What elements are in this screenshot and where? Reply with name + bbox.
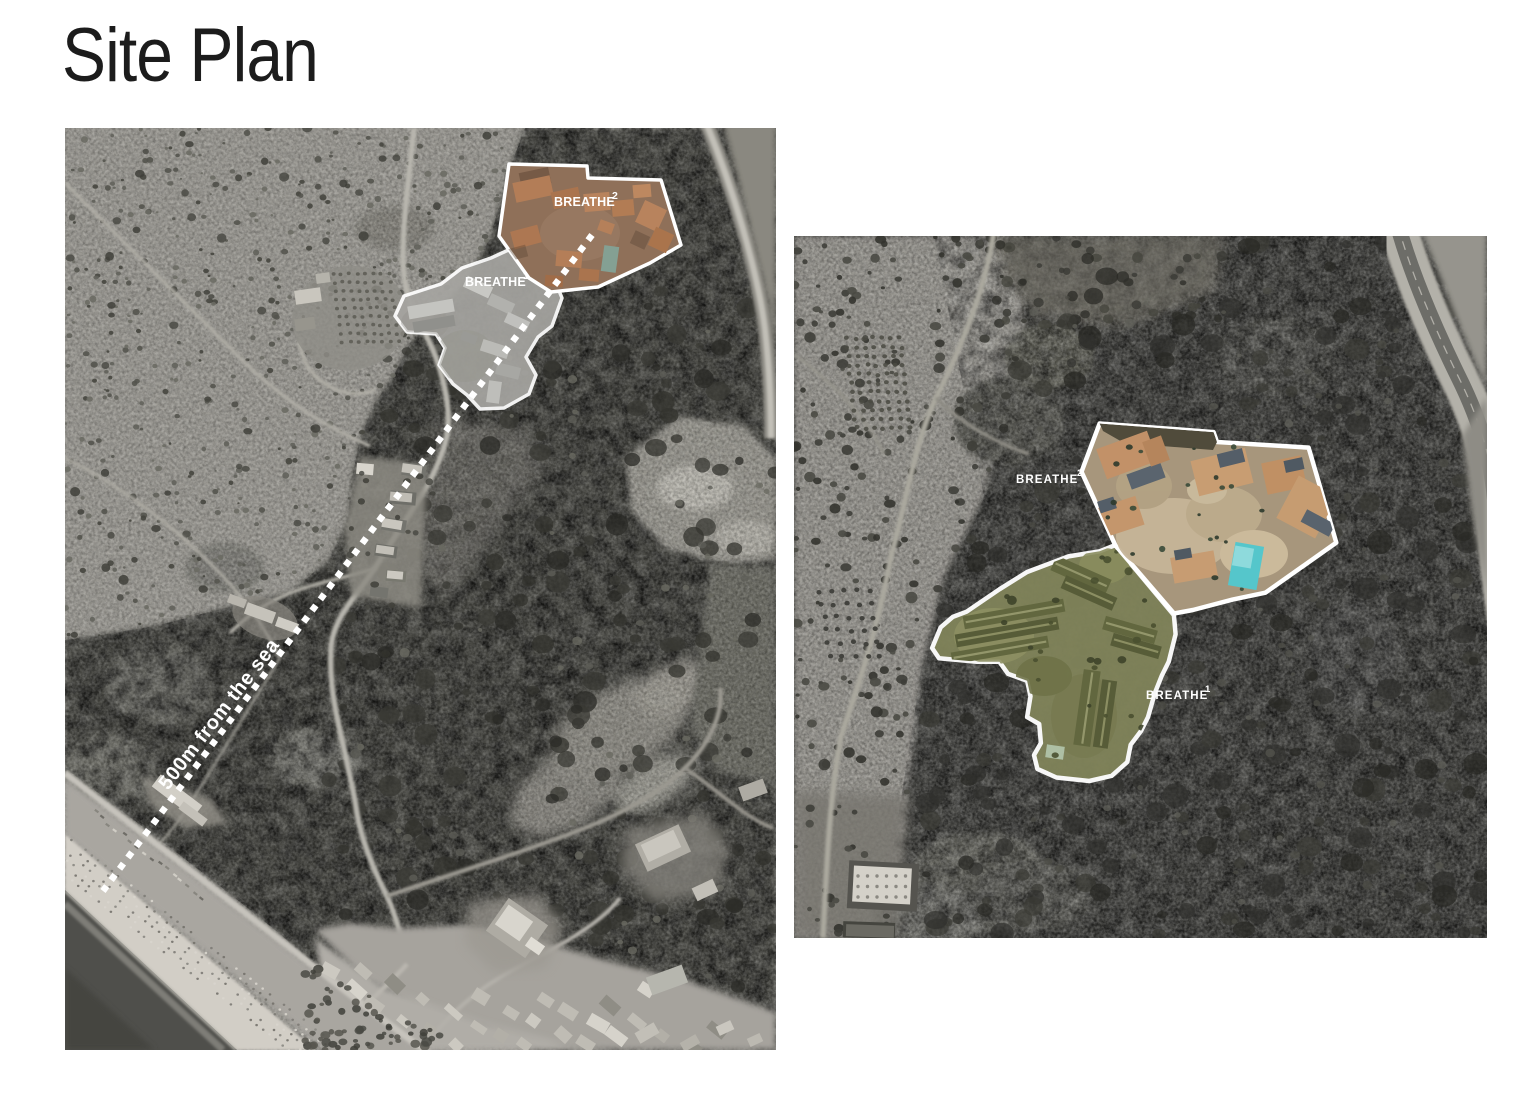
svg-text:BREATHE: BREATHE [465,275,526,289]
svg-text:1: 1 [523,270,530,282]
svg-text:BREATHE: BREATHE [1146,690,1208,702]
svg-text:2: 2 [612,190,619,202]
svg-text:BREATHE: BREATHE [1016,474,1078,486]
svg-text:BREATHE: BREATHE [554,195,615,209]
svg-text:1: 1 [1205,684,1211,695]
svg-text:2: 2 [1077,468,1083,479]
